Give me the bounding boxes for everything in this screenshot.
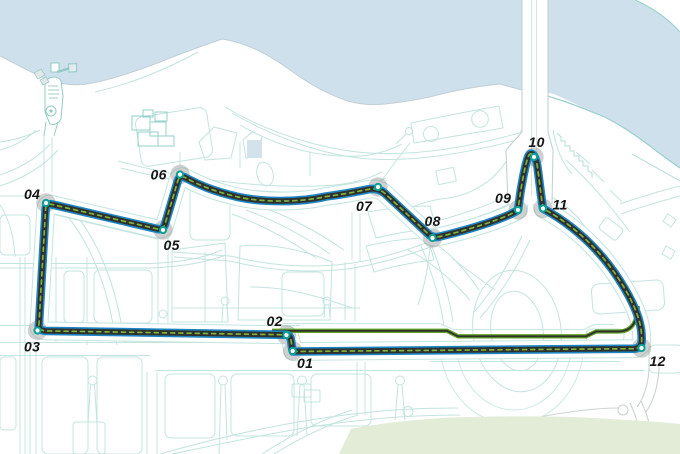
svg-text:07: 07 [356, 198, 373, 214]
svg-text:11: 11 [553, 197, 568, 213]
svg-text:01: 01 [297, 355, 313, 371]
svg-text:04: 04 [24, 186, 40, 202]
svg-text:03: 03 [24, 339, 40, 355]
svg-text:02: 02 [267, 313, 283, 329]
svg-text:09: 09 [495, 190, 511, 206]
svg-text:12: 12 [650, 353, 666, 369]
svg-text:05: 05 [164, 237, 180, 253]
svg-text:08: 08 [425, 213, 441, 229]
svg-text:10: 10 [529, 134, 545, 150]
svg-text:06: 06 [151, 167, 167, 183]
